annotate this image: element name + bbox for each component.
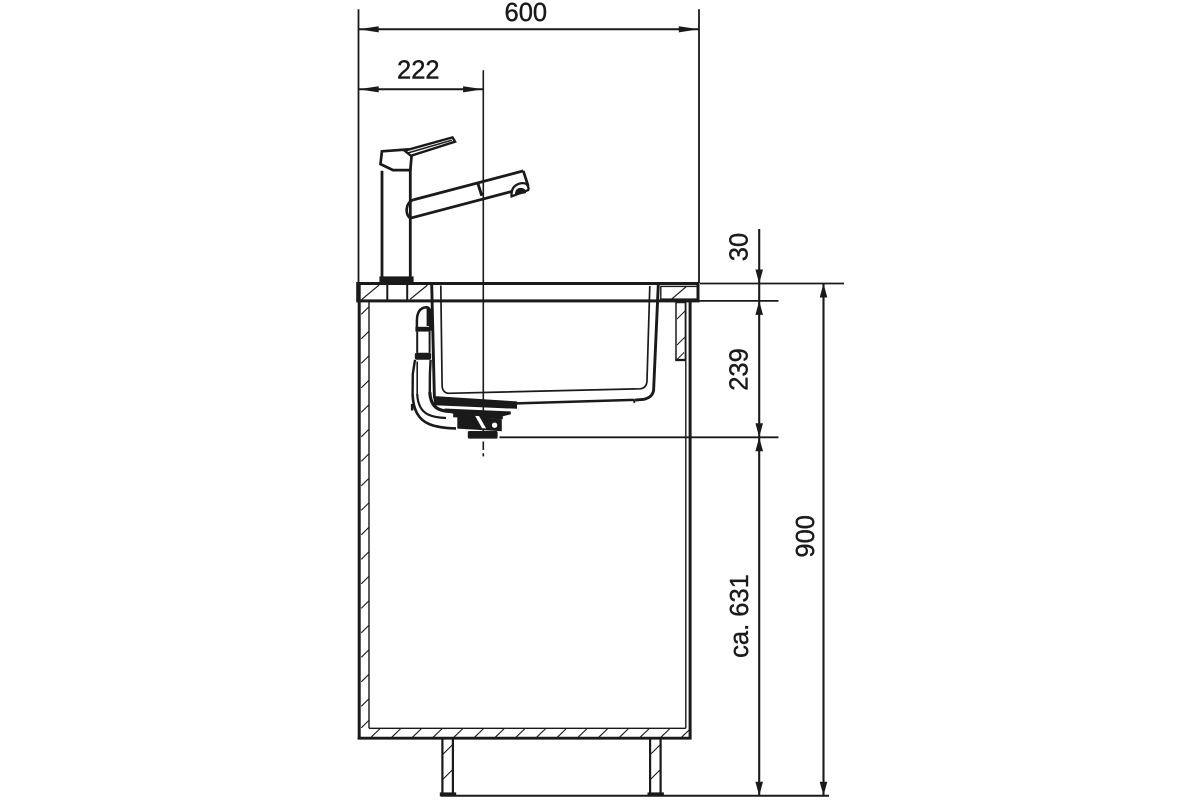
svg-text:222: 222 bbox=[397, 57, 440, 85]
svg-text:30: 30 bbox=[726, 233, 754, 261]
svg-text:239: 239 bbox=[726, 348, 754, 391]
svg-text:900: 900 bbox=[792, 515, 820, 558]
svg-text:600: 600 bbox=[505, 0, 548, 27]
svg-text:ca. 631: ca. 631 bbox=[726, 574, 754, 658]
